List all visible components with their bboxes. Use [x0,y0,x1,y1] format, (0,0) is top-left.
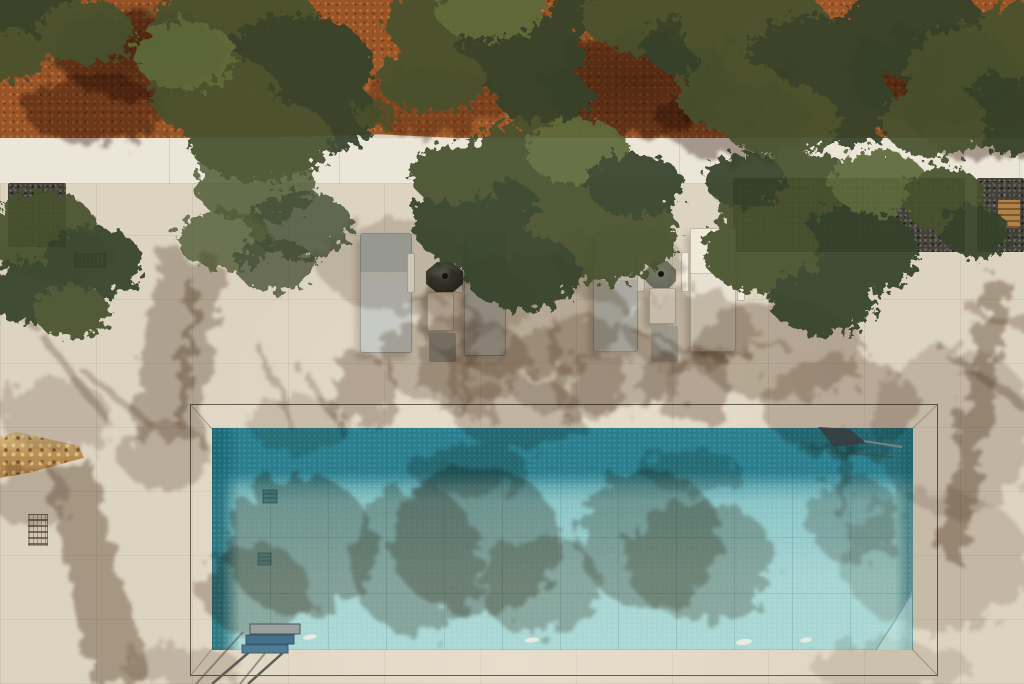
olive-tree-canopies [0,0,1024,338]
foliage-layer [0,0,1024,684]
aerial-photo [0,0,1024,684]
